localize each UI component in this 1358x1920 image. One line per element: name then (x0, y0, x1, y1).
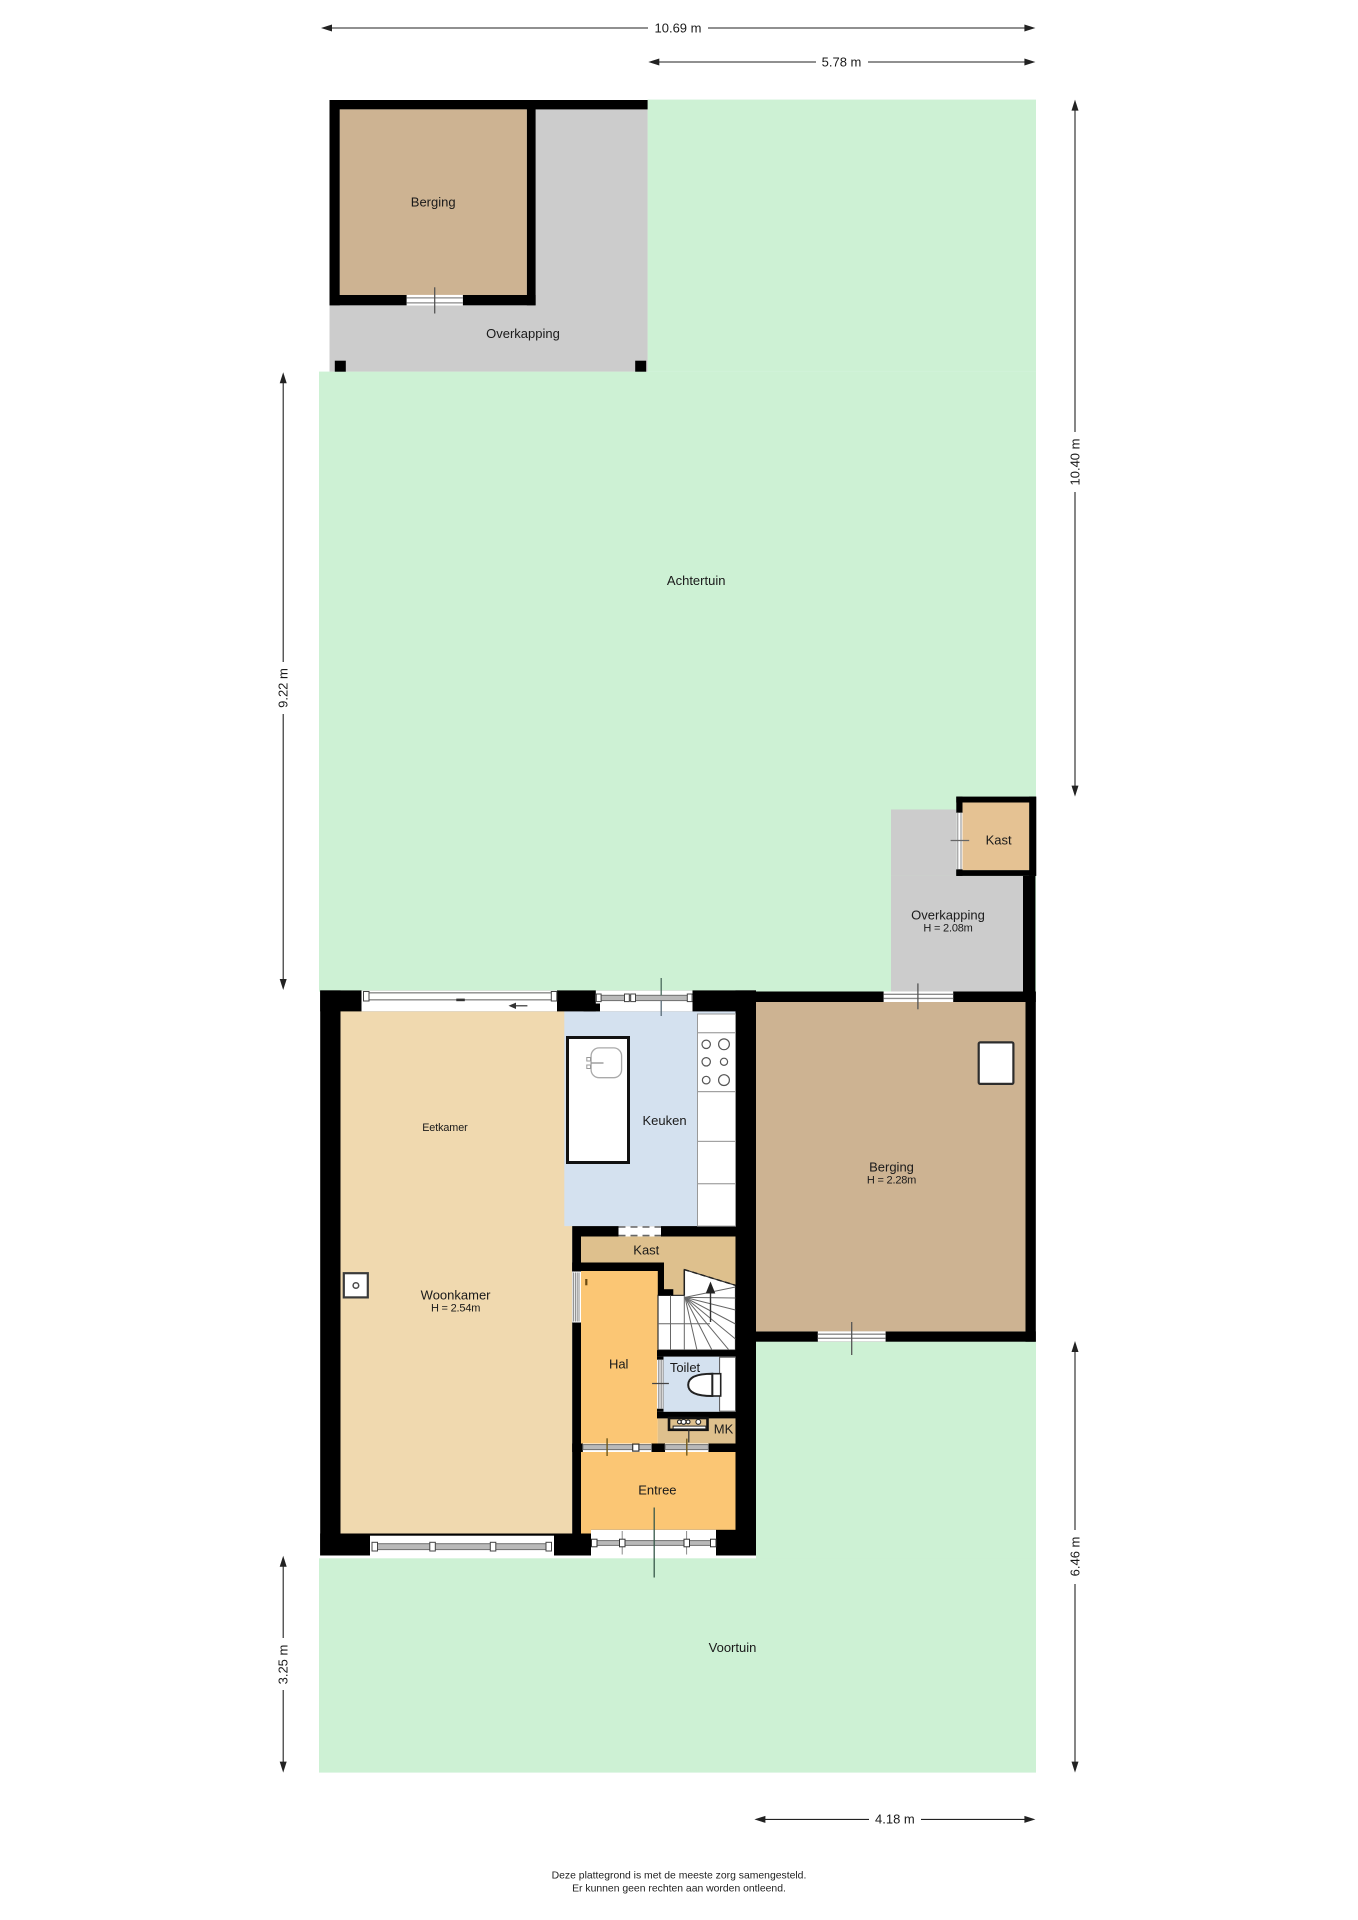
svg-text:Woonkamer: Woonkamer (421, 1288, 492, 1303)
svg-text:Hal: Hal (609, 1357, 629, 1372)
svg-text:Toilet: Toilet (670, 1360, 701, 1375)
svg-text:5.78 m: 5.78 m (822, 55, 862, 70)
svg-text:Overkapping: Overkapping (911, 908, 985, 923)
svg-text:Eetkamer: Eetkamer (422, 1122, 468, 1134)
svg-text:9.22 m: 9.22 m (276, 668, 291, 708)
svg-text:Deze plattegrond is met de mee: Deze plattegrond is met de meeste zorg s… (552, 1871, 807, 1882)
svg-text:Keuken: Keuken (642, 1113, 686, 1128)
svg-text:Kast: Kast (986, 833, 1012, 848)
svg-text:MK: MK (714, 1422, 734, 1437)
svg-text:Er kunnen geen rechten aan wor: Er kunnen geen rechten aan worden ontlee… (572, 1884, 786, 1895)
svg-text:6.46 m: 6.46 m (1068, 1537, 1083, 1577)
svg-text:H = 2.08m: H = 2.08m (923, 923, 972, 935)
svg-text:10.40 m: 10.40 m (1068, 439, 1083, 486)
svg-text:Voortuin: Voortuin (709, 1640, 757, 1655)
svg-text:Kast: Kast (633, 1243, 659, 1258)
svg-text:10.69 m: 10.69 m (655, 21, 702, 36)
svg-text:Achtertuin: Achtertuin (667, 573, 726, 588)
svg-text:H = 2.28m: H = 2.28m (867, 1175, 916, 1187)
svg-text:H = 2.54m: H = 2.54m (431, 1303, 480, 1315)
svg-text:3.25 m: 3.25 m (276, 1645, 291, 1685)
svg-text:Berging: Berging (869, 1160, 914, 1175)
svg-text:Entree: Entree (638, 1483, 676, 1498)
svg-text:Overkapping: Overkapping (486, 326, 560, 341)
svg-text:Berging: Berging (411, 195, 456, 210)
svg-text:4.18 m: 4.18 m (875, 1812, 915, 1827)
